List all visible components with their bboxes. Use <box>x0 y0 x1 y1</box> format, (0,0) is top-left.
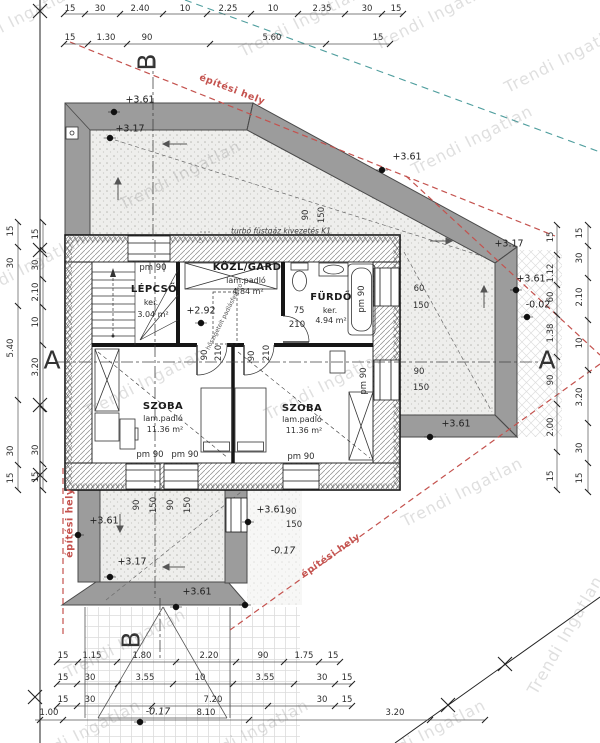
dimension-label: 10 <box>268 5 279 14</box>
dimension-label: 7.20 <box>204 696 223 705</box>
dimension-label: 15 <box>342 696 353 705</box>
dimension-label: 5.40 <box>7 339 16 358</box>
room-label: SZOBA <box>143 402 183 412</box>
dimension-label: 15 <box>7 473 16 484</box>
opening-dimension-label: pm 90 <box>136 451 163 460</box>
opening-dimension-label: 90 <box>133 500 142 511</box>
room-label: lam.padló <box>282 416 322 424</box>
opening-dimension-label: 150 <box>413 384 429 393</box>
dimension-label: 10 <box>576 338 585 349</box>
dimension-label: 30 <box>95 5 106 14</box>
opening-dimension-label: 90 <box>286 508 297 517</box>
dimension-label: 1.00 <box>40 709 59 718</box>
room-label: LÉPCSŐ <box>131 285 177 295</box>
dimension-label: 15 <box>576 228 585 239</box>
dimension-label: 30 <box>576 253 585 264</box>
level-label: -0.17 <box>146 707 171 717</box>
opening-dimension-label: 150 <box>150 497 159 513</box>
dimension-label: 90 <box>142 34 153 43</box>
level-label: +2.92 <box>186 306 215 316</box>
dimension-label: 3.20 <box>576 388 585 407</box>
dimension-label: 90 <box>258 652 269 661</box>
level-label: +3.61 <box>89 516 118 526</box>
level-label: -0.02 <box>526 300 551 310</box>
level-label: +3.17 <box>117 557 146 567</box>
dimension-label: 10 <box>32 317 41 328</box>
dimension-label: 2.10 <box>32 283 41 302</box>
section-marker: A <box>538 348 555 373</box>
room-label: ker. <box>144 299 158 307</box>
level-label: +3.61 <box>182 587 211 597</box>
dimension-label: 2.20 <box>200 652 219 661</box>
dimension-label: 30 <box>576 443 585 454</box>
building-site-boundary-label: építési hely <box>65 488 75 558</box>
opening-dimension-label: 210 <box>215 345 224 361</box>
room-label: lam.padló <box>226 277 266 285</box>
opening-dimension-label: 150 <box>413 302 429 311</box>
opening-dimension-label: pm 90 <box>171 451 198 460</box>
dimension-label: 15 <box>576 473 585 484</box>
dimension-label: 1.12 <box>547 264 556 283</box>
opening-dimension-label: 150 <box>318 207 327 223</box>
dimension-label: 15 <box>547 232 556 243</box>
room-label: lam.padló <box>143 415 183 423</box>
dimension-label: 15 <box>391 5 402 14</box>
dimension-label: 1.80 <box>133 652 152 661</box>
dimension-label: 15 <box>32 229 41 240</box>
dimension-label: 1.75 <box>295 652 314 661</box>
section-marker: B <box>135 53 160 70</box>
dimension-label: 30 <box>85 674 96 683</box>
note-label: turbó füstgáz kivezetés K1 <box>231 227 331 235</box>
room-label: 3.04 m² <box>137 311 168 319</box>
opening-dimension-label: pm 90 <box>358 285 367 312</box>
dimension-label: 2.10 <box>576 288 585 307</box>
opening-dimension-label: 90 <box>302 210 311 221</box>
dimension-label: 30 <box>317 696 328 705</box>
dimension-label: 10 <box>180 5 191 14</box>
level-label: +3.61 <box>256 505 285 515</box>
level-label: +3.17 <box>494 239 523 249</box>
room-label: 11.36 m² <box>147 426 183 434</box>
dimension-label: 15 <box>328 652 339 661</box>
dimension-label: 1.30 <box>97 34 116 43</box>
room-label: ker. <box>323 307 337 315</box>
level-label: -0.17 <box>271 546 296 556</box>
dimension-label: 90 <box>547 375 556 386</box>
dimension-label: 30 <box>362 5 373 14</box>
opening-dimension-label: pm 90 <box>287 453 314 462</box>
dimension-label: 3.20 <box>32 358 41 377</box>
dimension-label: 3.20 <box>386 709 405 718</box>
dimension-label: 30 <box>32 445 41 456</box>
dimension-label: 2.40 <box>131 5 150 14</box>
section-marker: A <box>43 348 60 373</box>
dimension-label: 15 <box>58 696 69 705</box>
dimension-label: 2.25 <box>219 5 238 14</box>
opening-dimension-label: 90 <box>248 351 257 362</box>
dimension-label: 30 <box>7 446 16 457</box>
opening-dimension-label: 150 <box>286 521 302 530</box>
dimension-label: 8.10 <box>197 709 216 718</box>
dimension-label: 15 <box>65 34 76 43</box>
opening-dimension-label: 90 <box>414 368 425 377</box>
dimension-label: 2.00 <box>547 418 556 437</box>
opening-dimension-label: 210 <box>263 345 272 361</box>
room-label: KÖZL/GARD <box>213 263 282 273</box>
dimension-label: 15 <box>342 674 353 683</box>
dimension-label: 3.55 <box>136 674 155 683</box>
level-label: +3.17 <box>115 124 144 134</box>
room-label: 11.36 m² <box>286 427 322 435</box>
opening-dimension-label: 60 <box>414 285 425 294</box>
opening-dimension-label: 210 <box>289 321 305 330</box>
room-label: 4.94 m² <box>315 317 346 325</box>
floor-plan-sheet: 15302.40102.25102.353015151.30905.601515… <box>0 0 600 743</box>
level-label: +3.61 <box>125 95 154 105</box>
dimension-label: 15 <box>7 226 16 237</box>
opening-dimension-label: 75 <box>294 307 305 316</box>
opening-dimension-label: pm 90 <box>139 264 166 273</box>
opening-dimension-label: 150 <box>184 497 193 513</box>
dimension-label: 15 <box>32 472 41 483</box>
room-label: FÜRDŐ <box>310 293 351 303</box>
dimension-label: 30 <box>85 696 96 705</box>
dimension-label: 3.55 <box>256 674 275 683</box>
level-label: +3.61 <box>516 274 545 284</box>
opening-dimension-label: 90 <box>167 500 176 511</box>
dimension-label: 15 <box>58 652 69 661</box>
dimension-label: 30 <box>317 674 328 683</box>
dimension-label: 10 <box>195 674 206 683</box>
dimension-label: 15 <box>547 471 556 482</box>
dimension-label: 1.38 <box>547 324 556 343</box>
dimension-label: 15 <box>65 5 76 14</box>
level-label: +3.61 <box>441 419 470 429</box>
